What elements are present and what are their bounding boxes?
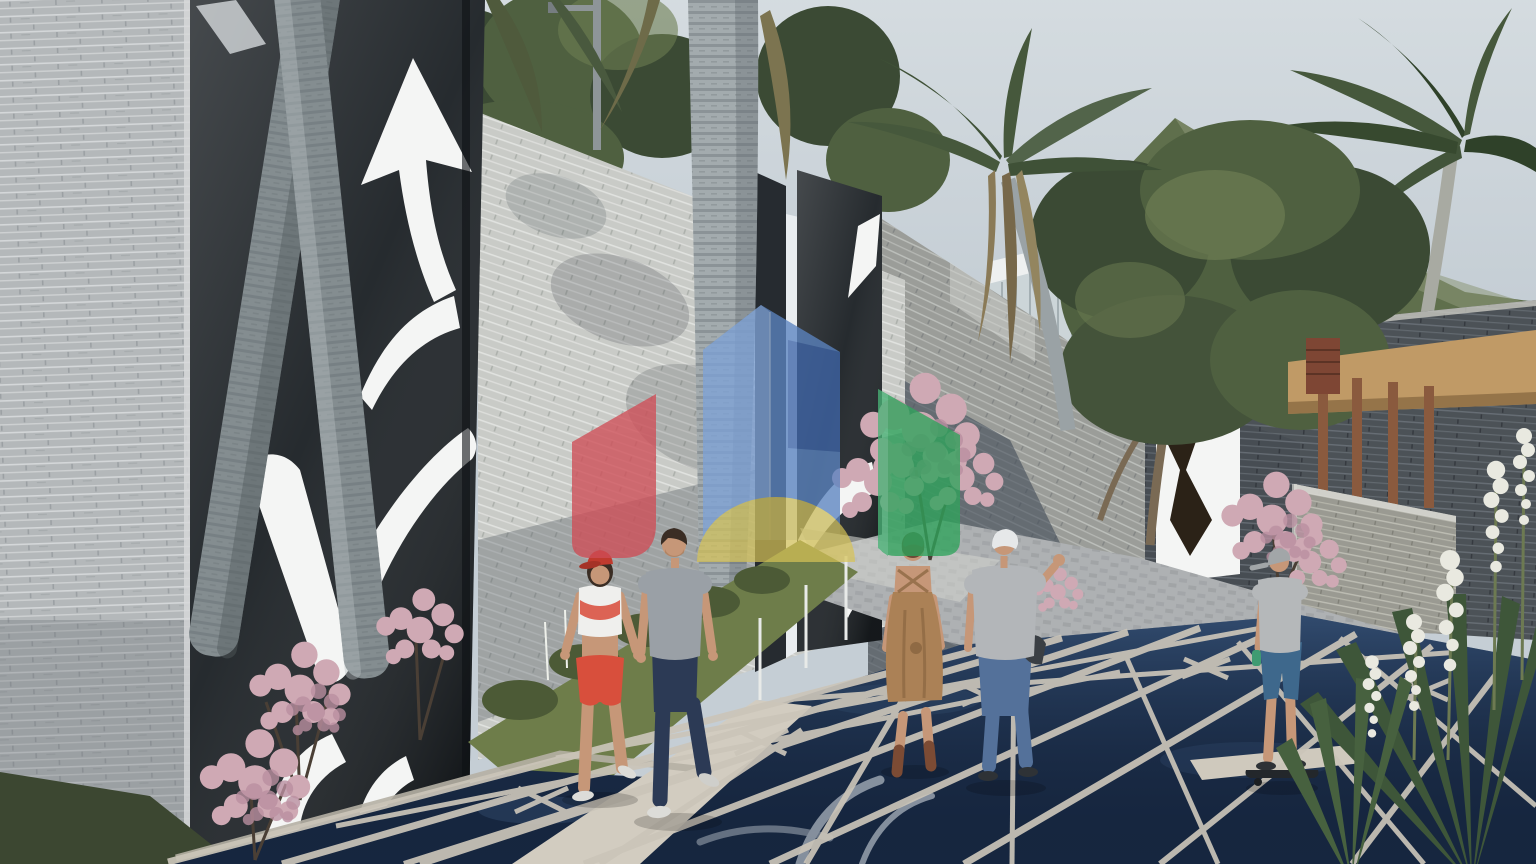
bottle: [1252, 650, 1261, 666]
wall-edge-light: [184, 0, 190, 864]
cap-brim: [1252, 565, 1266, 568]
wheel: [1254, 778, 1262, 786]
scene-canvas: [0, 0, 1536, 864]
shadow: [634, 813, 722, 831]
post: [1424, 386, 1434, 508]
hedge: [482, 680, 558, 720]
post: [1388, 382, 1398, 506]
sleeve: [1026, 572, 1046, 592]
sleeve: [638, 574, 658, 594]
hand: [708, 651, 718, 661]
shadow: [562, 792, 638, 808]
sleeve: [1252, 584, 1268, 600]
sleeve: [964, 574, 984, 594]
hand: [636, 653, 646, 663]
shadow: [966, 780, 1046, 796]
shoe: [1018, 767, 1038, 777]
canopy-light: [1075, 262, 1185, 338]
waving-hand: [1053, 554, 1065, 566]
panel-frame-edge: [462, 0, 470, 864]
red-shorts: [576, 655, 624, 706]
blue-inner-facet: [788, 340, 840, 452]
canopy-light: [1145, 170, 1285, 260]
left-wall: [0, 0, 190, 864]
hand: [560, 650, 570, 660]
green-edge: [878, 389, 888, 556]
face: [591, 566, 610, 585]
shadow: [881, 765, 949, 779]
waist-tie: [910, 642, 922, 654]
louver-panel: [1306, 338, 1340, 394]
shoe: [1256, 762, 1276, 771]
shoe: [978, 771, 998, 781]
render-image: [0, 0, 1536, 864]
sleeve: [1292, 584, 1308, 600]
post: [1352, 378, 1362, 504]
hedge: [734, 566, 790, 594]
sleeve: [692, 574, 712, 594]
